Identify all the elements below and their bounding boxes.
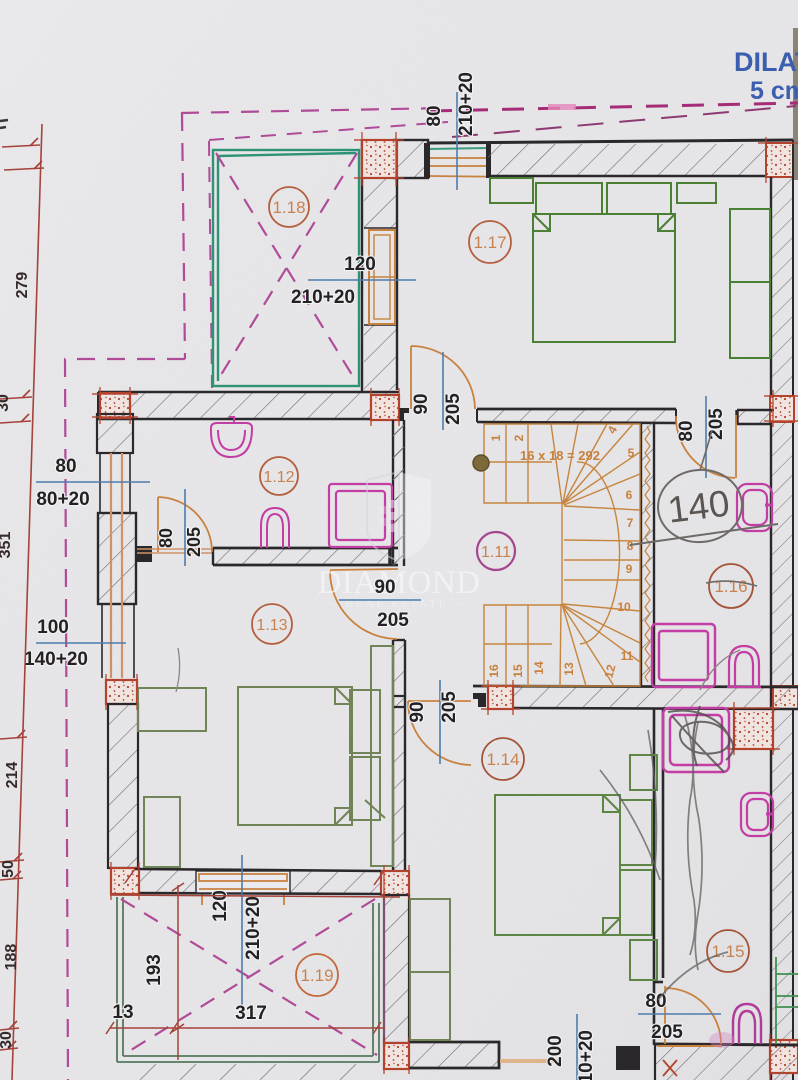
svg-text:9: 9: [626, 562, 633, 576]
svg-text:80: 80: [55, 456, 76, 477]
svg-text:205: 205: [443, 393, 464, 425]
svg-text:193: 193: [144, 954, 165, 986]
svg-text:1.13: 1.13: [256, 617, 287, 634]
svg-text:90: 90: [411, 393, 432, 414]
svg-text:16: 16: [487, 664, 501, 678]
svg-text:214: 214: [4, 762, 21, 789]
svg-text:15: 15: [511, 664, 525, 678]
svg-text:50: 50: [0, 860, 17, 878]
svg-text:1.15: 1.15: [711, 942, 744, 961]
svg-text:1.17: 1.17: [473, 233, 506, 252]
svg-text:317: 317: [235, 1003, 267, 1024]
svg-text:90: 90: [407, 701, 428, 722]
svg-text:8: 8: [627, 539, 634, 553]
svg-text:205: 205: [706, 408, 727, 440]
svg-text:5 cm: 5 cm: [750, 77, 798, 105]
svg-text:1.16: 1.16: [714, 577, 747, 596]
svg-text:200: 200: [545, 1035, 566, 1067]
svg-text:DIAMOND: DIAMOND: [318, 565, 481, 601]
svg-text:5: 5: [628, 446, 635, 460]
svg-text:2: 2: [512, 434, 526, 441]
svg-text:351: 351: [0, 532, 14, 559]
svg-text:205: 205: [184, 527, 204, 557]
svg-text:30: 30: [0, 1031, 15, 1049]
svg-text:1: 1: [489, 434, 503, 441]
svg-text:80: 80: [676, 420, 697, 441]
svg-text:11: 11: [621, 649, 634, 663]
svg-text:DILAT.: DILAT.: [734, 47, 798, 77]
svg-text:205: 205: [377, 610, 409, 631]
svg-text:1.18: 1.18: [272, 198, 305, 217]
svg-text:1.19: 1.19: [300, 966, 333, 985]
svg-text:140: 140: [665, 482, 731, 530]
svg-text:1.11: 1.11: [481, 544, 511, 561]
svg-text:120: 120: [210, 890, 231, 922]
svg-text:1.12: 1.12: [263, 469, 294, 486]
svg-text:140+20: 140+20: [24, 649, 88, 670]
svg-text:10: 10: [617, 600, 631, 614]
svg-text:205: 205: [651, 1022, 683, 1043]
svg-text:210+20: 210+20: [243, 896, 264, 960]
svg-text:120: 120: [344, 254, 376, 275]
svg-text:13: 13: [112, 1002, 133, 1023]
svg-text:210+20: 210+20: [291, 287, 355, 308]
svg-text:14: 14: [532, 661, 546, 675]
svg-text:210+20: 210+20: [576, 1030, 597, 1080]
svg-text:30: 30: [0, 394, 12, 412]
svg-text:13: 13: [562, 662, 576, 676]
svg-text:80: 80: [424, 105, 445, 126]
svg-text:100: 100: [37, 617, 69, 638]
svg-text:80+20: 80+20: [36, 489, 89, 510]
svg-text:7: 7: [627, 516, 634, 530]
svg-text:210+20: 210+20: [456, 72, 477, 136]
svg-text:205: 205: [439, 691, 460, 723]
svg-text:6: 6: [626, 488, 633, 502]
svg-text:279: 279: [14, 272, 31, 299]
svg-text:188: 188: [3, 944, 20, 971]
svg-text:90: 90: [374, 577, 395, 598]
svg-text:1.14: 1.14: [486, 750, 519, 769]
svg-text:80: 80: [156, 528, 176, 548]
svg-text:16 x 18 = 292: 16 x 18 = 292: [520, 448, 600, 463]
